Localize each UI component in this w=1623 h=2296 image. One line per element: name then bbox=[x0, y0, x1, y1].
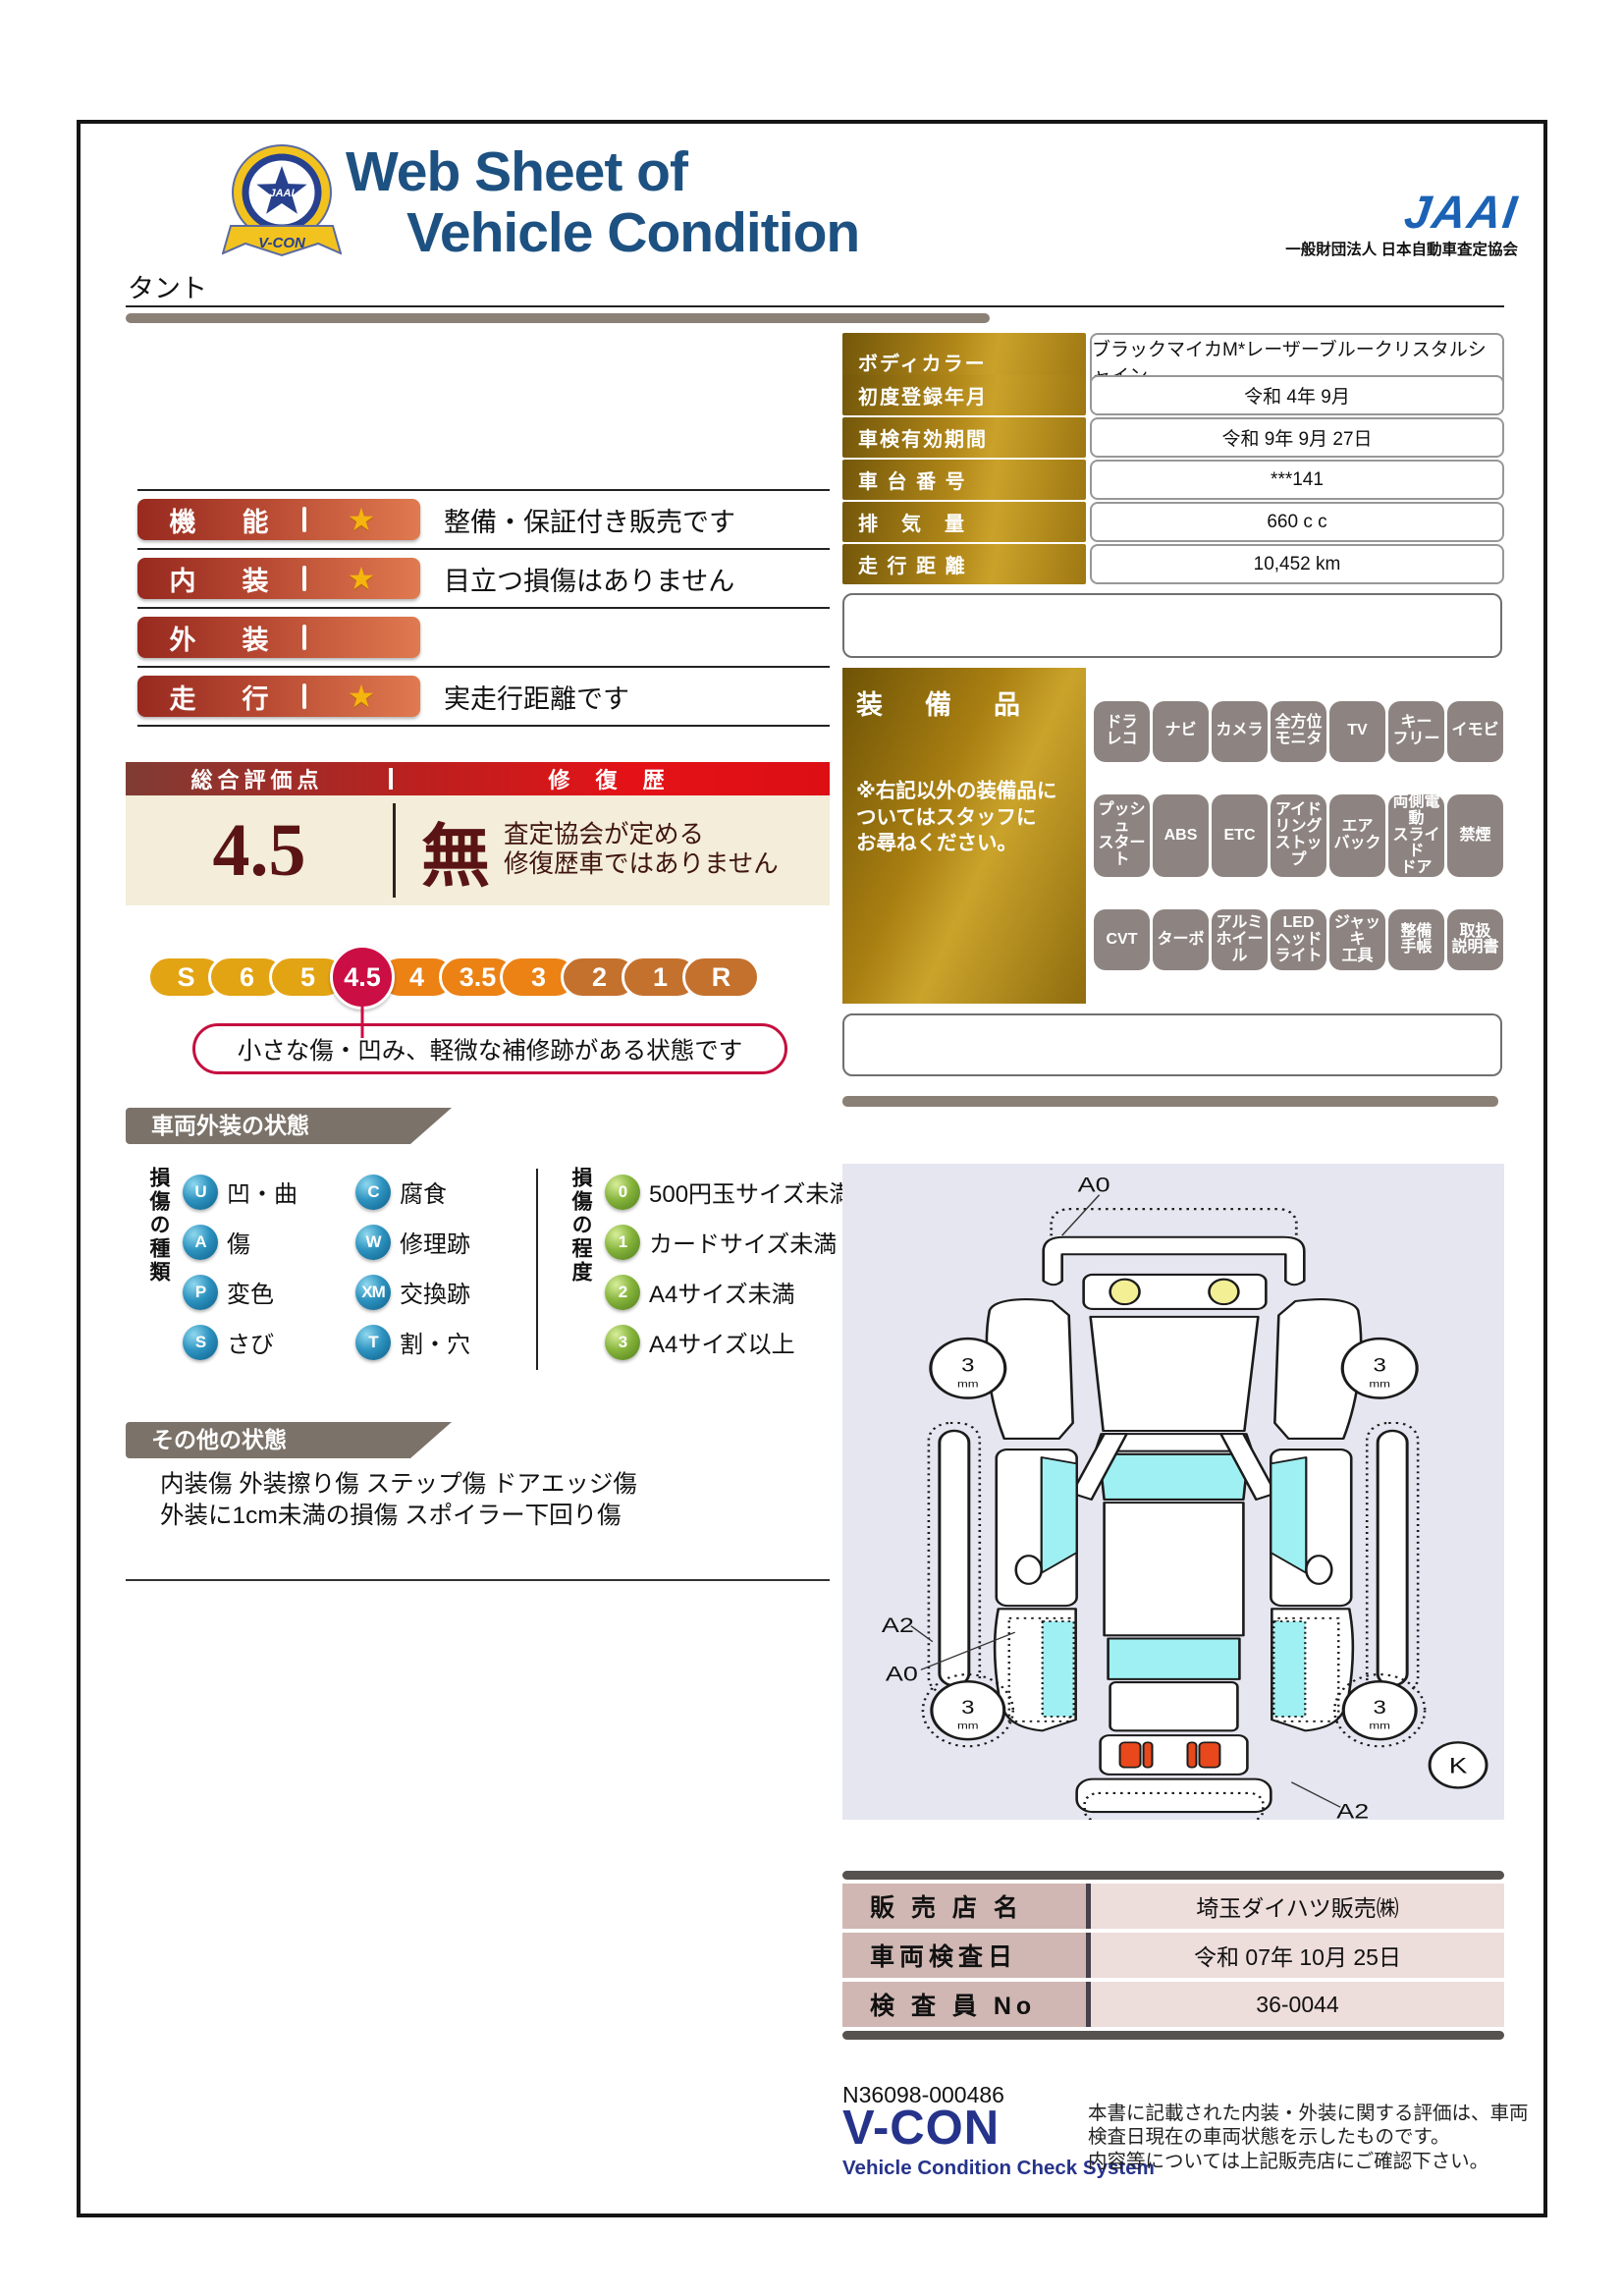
headlight-right bbox=[1209, 1280, 1238, 1304]
body-divider bbox=[393, 803, 396, 898]
legal-note: 本書に記載された内装・外装に関する評価は、車両 検査日現在の車両状態を示したもの… bbox=[1088, 2102, 1529, 2173]
rating-divider-tick bbox=[302, 625, 306, 650]
empty-remarks-box bbox=[842, 1013, 1502, 1076]
damage-level-item: 1 カードサイズ未満 bbox=[605, 1225, 852, 1260]
equipment-badge: CVT bbox=[1094, 909, 1150, 970]
info-value: 660 c c bbox=[1090, 502, 1504, 542]
jaai-organization: 一般財団法人 日本自動車査定協会 bbox=[1194, 238, 1518, 259]
damage-type-label: 割・穴 bbox=[400, 1325, 470, 1359]
rear-window bbox=[1109, 1639, 1240, 1679]
equipment-badge: エア バック bbox=[1329, 794, 1385, 877]
pointer-line-front bbox=[1062, 1195, 1100, 1235]
vehicle-info-row: 走 行 距 離 10,452 km bbox=[842, 544, 1504, 584]
equipment-badge: キー フリー bbox=[1388, 701, 1444, 762]
roof bbox=[1105, 1503, 1244, 1635]
corner-mark: K bbox=[1449, 1754, 1468, 1778]
sheet-title: Web Sheet of Vehicle Condition bbox=[346, 141, 859, 263]
rating-bar: 走 行 ★ bbox=[137, 676, 420, 717]
damage-level-code-icon: 2 bbox=[605, 1275, 640, 1310]
damage-legend: 損傷の種類 U 凹・曲 A 傷 P 変色 S bbox=[143, 1167, 852, 1375]
overall-score-header: 総合評価点 bbox=[126, 763, 389, 794]
equipment-badge: LED ヘッド ライト bbox=[1271, 909, 1326, 970]
tire-depth-unit: mm bbox=[957, 1721, 979, 1731]
rating-label: 内 装 bbox=[149, 560, 298, 598]
legend-divider bbox=[536, 1169, 538, 1370]
dealer-rows: 販 売 店 名 埼玉ダイハツ販売㈱ 車両検査日 令和 07年 10月 25日 検… bbox=[842, 1884, 1504, 2027]
score-callout: 小さな傷・凹み、軽微な補修跡がある状態です bbox=[192, 1023, 787, 1074]
tire-depth-unit: mm bbox=[1369, 1721, 1390, 1731]
rating-row: 内 装 ★ 目立つ損傷はありません bbox=[137, 550, 830, 609]
repair-note-line1: 査定協会が定める bbox=[504, 821, 779, 850]
damage-type-label: 交換跡 bbox=[400, 1275, 470, 1309]
damage-level-item: 3 A4サイズ以上 bbox=[605, 1325, 852, 1360]
info-value: 令和 9年 9月 27日 bbox=[1090, 417, 1504, 458]
side-sill-right bbox=[1378, 1431, 1407, 1685]
tire-depth-value: 3 bbox=[961, 1354, 974, 1376]
other-condition-line2: 外装に1cm未満の損傷 スポイラー下回り傷 bbox=[160, 1501, 637, 1532]
title-line1: Web Sheet of bbox=[346, 141, 859, 202]
vcon-emblem-icon: JAAI V-CON bbox=[222, 143, 342, 267]
vehicle-info-table: ボディカラー ブラックマイカM*レーザーブルークリスタルシャイン 初度登録年月 … bbox=[842, 333, 1504, 586]
vehicle-info-row: 初度登録年月 令和 4年 9月 bbox=[842, 375, 1504, 415]
damage-type-code-icon: T bbox=[355, 1325, 391, 1360]
other-condition-text: 内装傷 外装擦り傷 ステップ傷 ドアエッジ傷 外装に1cm未満の損傷 スポイラー… bbox=[160, 1469, 637, 1533]
empty-remarks-box bbox=[842, 593, 1502, 658]
divider-line bbox=[126, 305, 1504, 307]
star-icon: ★ bbox=[314, 501, 408, 538]
dealer-row: 車両検査日 令和 07年 10月 25日 bbox=[842, 1933, 1504, 1978]
damage-types-label: 損傷の種類 bbox=[143, 1167, 173, 1375]
equipment-badge: ABS bbox=[1153, 794, 1209, 877]
hood bbox=[1091, 1317, 1259, 1431]
equipment-badge: アルミ ホイール bbox=[1212, 909, 1268, 970]
door-detail-right bbox=[1306, 1556, 1331, 1584]
rating-divider-tick bbox=[302, 566, 306, 591]
damage-type-code-icon: C bbox=[355, 1175, 391, 1210]
equipment-title: 装 備 品 bbox=[856, 683, 1072, 722]
equipment-left-panel: 装 備 品 ※右記以外の装備品に ついてはスタッフに お尋ねください。 bbox=[842, 668, 1086, 1004]
rating-bar: 内 装 ★ bbox=[137, 558, 420, 599]
vehicle-info-row: ボディカラー ブラックマイカM*レーザーブルークリスタルシャイン bbox=[842, 333, 1504, 373]
equipment-grid: ドラ レコナビカメラ全方位 モニタTVキー フリーイモビプッシュ スタートABS… bbox=[1086, 668, 1504, 1004]
equipment-badge: イモビ bbox=[1447, 701, 1503, 762]
dealer-row-label: 検 査 員 No bbox=[842, 1982, 1086, 2027]
equipment-badge: カメラ bbox=[1212, 701, 1268, 762]
rating-row: 走 行 ★ 実走行距離です bbox=[137, 668, 830, 727]
dealer-row-label: 車両検査日 bbox=[842, 1933, 1086, 1978]
divider-line bbox=[126, 1579, 830, 1581]
legal-note-line3: 内容等については上記販売店にご確認下さい。 bbox=[1088, 2150, 1529, 2173]
star-icon: ★ bbox=[314, 678, 408, 715]
damage-level-label: 500円玉サイズ未満 bbox=[649, 1175, 852, 1209]
damage-levels-label: 損傷の程度 bbox=[566, 1167, 595, 1375]
dealer-row-value: 埼玉ダイハツ販売㈱ bbox=[1091, 1884, 1504, 1929]
rating-label: 走 行 bbox=[149, 678, 298, 716]
damage-type-item: W 修理跡 bbox=[355, 1225, 528, 1260]
equipment-badge: ナビ bbox=[1153, 701, 1209, 762]
equipment-badge: ジャッキ 工具 bbox=[1329, 909, 1385, 970]
overall-body: 4.5 無 査定協会が定める 修復歴車ではありません bbox=[126, 795, 830, 905]
equipment-badge: 禁煙 bbox=[1447, 794, 1503, 877]
rating-note: 実走行距離です bbox=[444, 678, 629, 716]
star-icon: ★ bbox=[314, 560, 408, 597]
taillight-right bbox=[1199, 1742, 1219, 1767]
equipment-note: ※右記以外の装備品に ついてはスタッフに お尋ねください。 bbox=[856, 779, 1072, 857]
equipment-badge: 整備 手帳 bbox=[1388, 909, 1444, 970]
equipment-badge: プッシュ スタート bbox=[1094, 794, 1150, 877]
damage-types-list: U 凹・曲 A 傷 P 変色 S さび bbox=[183, 1167, 528, 1367]
emblem-banner-text: V-CON bbox=[258, 235, 306, 251]
tire-depth-value: 3 bbox=[961, 1696, 974, 1718]
equipment-badge: ターボ bbox=[1153, 909, 1209, 970]
equipment-badge: アイド リング ストップ bbox=[1271, 794, 1326, 877]
rating-row: 機 能 ★ 整備・保証付き販売です bbox=[137, 491, 830, 550]
rating-rows: 機 能 ★ 整備・保証付き販売です 内 装 ★ 目立つ損傷はありません 外 装 bbox=[137, 489, 830, 727]
repair-note: 査定協会が定める 修復歴車ではありません bbox=[504, 821, 779, 879]
title-line2: Vehicle Condition bbox=[406, 202, 859, 263]
damage-level-code-icon: 3 bbox=[605, 1325, 640, 1360]
rating-divider-tick bbox=[302, 507, 306, 532]
dealer-table: 販 売 店 名 埼玉ダイハツ販売㈱ 車両検査日 令和 07年 10月 25日 検… bbox=[842, 1871, 1504, 2040]
damage-type-item: A 傷 bbox=[183, 1225, 355, 1260]
door-window-right bbox=[1271, 1457, 1306, 1573]
door-detail-left bbox=[1016, 1556, 1042, 1584]
equipment-badge: 取扱 説明書 bbox=[1447, 909, 1503, 970]
taillight-right-inner bbox=[1187, 1742, 1196, 1767]
damage-level-code-icon: 0 bbox=[605, 1175, 640, 1210]
damage-type-label: 変色 bbox=[227, 1275, 274, 1309]
dealer-row-label: 販 売 店 名 bbox=[842, 1884, 1086, 1929]
rear-bumper bbox=[1077, 1779, 1271, 1812]
damage-levels-list: 0 500円玉サイズ未満 1 カードサイズ未満 2 A4サイズ未満 3 A4サイ… bbox=[605, 1167, 852, 1367]
rating-row: 外 装 ★ bbox=[137, 609, 830, 668]
quarter-window-right bbox=[1273, 1621, 1305, 1717]
damage-type-label: 腐食 bbox=[400, 1175, 447, 1209]
dealer-row: 検 査 員 No 36-0044 bbox=[842, 1982, 1504, 2027]
damage-type-label: 傷 bbox=[227, 1225, 250, 1259]
damage-type-item: C 腐食 bbox=[355, 1175, 528, 1210]
tire-depth-unit: mm bbox=[1369, 1379, 1390, 1390]
legal-note-line1: 本書に記載された内装・外装に関する評価は、車両 bbox=[1088, 2102, 1529, 2125]
scale-segment-selected: 4.5 bbox=[330, 945, 395, 1010]
pointer-line-rear bbox=[1291, 1782, 1340, 1807]
repair-history-header: 修 復 歴 bbox=[393, 763, 830, 794]
rating-bar: 外 装 ★ bbox=[137, 617, 420, 658]
damage-type-code-icon: W bbox=[355, 1225, 391, 1260]
windshield bbox=[1100, 1454, 1249, 1500]
headlight-left bbox=[1110, 1280, 1140, 1304]
side-sill-left bbox=[940, 1431, 969, 1685]
table-bottom-bar bbox=[842, 2031, 1504, 2040]
damage-type-code-icon: A bbox=[183, 1225, 218, 1260]
damage-type-code-icon: U bbox=[183, 1175, 218, 1210]
overall-header: 総合評価点 修 復 歴 bbox=[126, 762, 830, 795]
vehicle-condition-sheet: JAAI V-CON Web Sheet of Vehicle Conditio… bbox=[0, 0, 1623, 2296]
rating-scale: S654.543.5321R bbox=[147, 945, 760, 1010]
damage-level-label: A4サイズ以上 bbox=[649, 1325, 795, 1359]
damage-type-item: P 変色 bbox=[183, 1275, 355, 1310]
vehicle-info-row: 車検有効期間 令和 9年 9月 27日 bbox=[842, 417, 1504, 458]
info-value: 10,452 km bbox=[1090, 544, 1504, 584]
overall-score-block: 総合評価点 修 復 歴 4.5 無 査定協会が定める 修復歴車ではありません bbox=[126, 762, 830, 905]
scale-segment: R bbox=[682, 956, 760, 999]
dealer-row-value: 36-0044 bbox=[1091, 1982, 1504, 2027]
damage-level-item: 2 A4サイズ未満 bbox=[605, 1275, 852, 1310]
damage-type-item: S さび bbox=[183, 1325, 355, 1360]
equipment-badge: 両側電動 スライド ドア bbox=[1388, 794, 1444, 877]
quarter-window-left bbox=[1043, 1621, 1074, 1717]
tailgate bbox=[1110, 1682, 1238, 1730]
door-window-left bbox=[1042, 1457, 1077, 1573]
divider-bar bbox=[126, 313, 990, 323]
damage-level-label: A4サイズ未満 bbox=[649, 1275, 795, 1309]
info-label: 車検有効期間 bbox=[842, 417, 1086, 458]
info-value: ***141 bbox=[1090, 460, 1504, 500]
rating-label: 外 装 bbox=[149, 619, 298, 657]
damage-level-item: 0 500円玉サイズ未満 bbox=[605, 1175, 852, 1210]
damage-type-label: さび bbox=[227, 1325, 274, 1359]
rating-label: 機 能 bbox=[149, 501, 298, 539]
pointer-line-door bbox=[911, 1626, 933, 1642]
info-label: 初度登録年月 bbox=[842, 375, 1086, 415]
divider-bar bbox=[842, 1096, 1498, 1107]
damage-label-rear: A2 bbox=[1336, 1800, 1369, 1820]
emblem-star-text: JAAI bbox=[269, 188, 295, 199]
vehicle-info-row: 排 気 量 660 c c bbox=[842, 502, 1504, 542]
info-label: 車 台 番 号 bbox=[842, 460, 1086, 500]
repair-note-line2: 修復歴車ではありません bbox=[504, 850, 779, 880]
damage-type-label: 凹・曲 bbox=[227, 1175, 298, 1209]
other-section-header: その他の状態 bbox=[126, 1422, 452, 1458]
exterior-section-header: 車両外装の状態 bbox=[126, 1108, 452, 1144]
info-label: 排 気 量 bbox=[842, 502, 1086, 542]
taillight-left bbox=[1120, 1742, 1141, 1767]
tire-depth-unit: mm bbox=[957, 1379, 979, 1390]
jaai-logo-block: JAAI 一般財団法人 日本自動車査定協会 bbox=[1194, 189, 1518, 259]
equipment-badge: ETC bbox=[1212, 794, 1268, 877]
taillight-left-inner bbox=[1144, 1742, 1153, 1767]
repair-status: 無 bbox=[421, 801, 490, 901]
equipment-badge: ドラ レコ bbox=[1094, 701, 1150, 762]
equipment-badge: 全方位 モニタ bbox=[1271, 701, 1326, 762]
vcon-footer-logo: V-CON bbox=[842, 2104, 1000, 2153]
equipment-badge: TV bbox=[1329, 701, 1385, 762]
damage-type-item: XM 交換跡 bbox=[355, 1275, 528, 1310]
damage-label-door: A2 bbox=[882, 1614, 914, 1638]
damage-type-code-icon: P bbox=[183, 1275, 218, 1310]
damage-type-item: U 凹・曲 bbox=[183, 1175, 355, 1210]
damage-label-rocker: A0 bbox=[886, 1663, 918, 1686]
rating-bar: 機 能 ★ bbox=[137, 499, 420, 540]
info-value: 令和 4年 9月 bbox=[1090, 375, 1504, 415]
tire-depth-value: 3 bbox=[1374, 1696, 1386, 1718]
damage-type-code-icon: XM bbox=[355, 1275, 391, 1310]
dealer-row-value: 令和 07年 10月 25日 bbox=[1091, 1933, 1504, 1978]
damage-type-label: 修理跡 bbox=[400, 1225, 470, 1259]
tire-depth-value: 3 bbox=[1374, 1354, 1386, 1376]
damage-level-label: カードサイズ未満 bbox=[649, 1225, 837, 1259]
table-top-bar bbox=[842, 1871, 1504, 1880]
jaai-logo-icon: JAAI bbox=[1402, 189, 1522, 236]
legal-note-line2: 検査日現在の車両状態を示したものです。 bbox=[1088, 2125, 1529, 2149]
car-damage-diagram: A0 A2 A0 A2 K 3 mm 3 mm 3 mm 3 mm bbox=[842, 1164, 1504, 1820]
dealer-row: 販 売 店 名 埼玉ダイハツ販売㈱ bbox=[842, 1884, 1504, 1929]
equipment-block: 装 備 品 ※右記以外の装備品に ついてはスタッフに お尋ねください。 ドラ レ… bbox=[842, 668, 1504, 1004]
overall-score-value: 4.5 bbox=[126, 808, 393, 894]
damage-label-front: A0 bbox=[1078, 1174, 1110, 1197]
damage-level-code-icon: 1 bbox=[605, 1225, 640, 1260]
info-label: 走 行 距 離 bbox=[842, 544, 1086, 584]
rating-note: 目立つ損傷はありません bbox=[444, 560, 734, 598]
rating-note: 整備・保証付き販売です bbox=[444, 501, 735, 539]
vehicle-name: タント bbox=[128, 267, 207, 305]
rating-divider-tick bbox=[302, 683, 306, 709]
damage-type-item: T 割・穴 bbox=[355, 1325, 528, 1360]
damage-type-code-icon: S bbox=[183, 1325, 218, 1360]
vehicle-info-row: 車 台 番 号 ***141 bbox=[842, 460, 1504, 500]
other-condition-line1: 内装傷 外装擦り傷 ステップ傷 ドアエッジ傷 bbox=[160, 1469, 637, 1501]
